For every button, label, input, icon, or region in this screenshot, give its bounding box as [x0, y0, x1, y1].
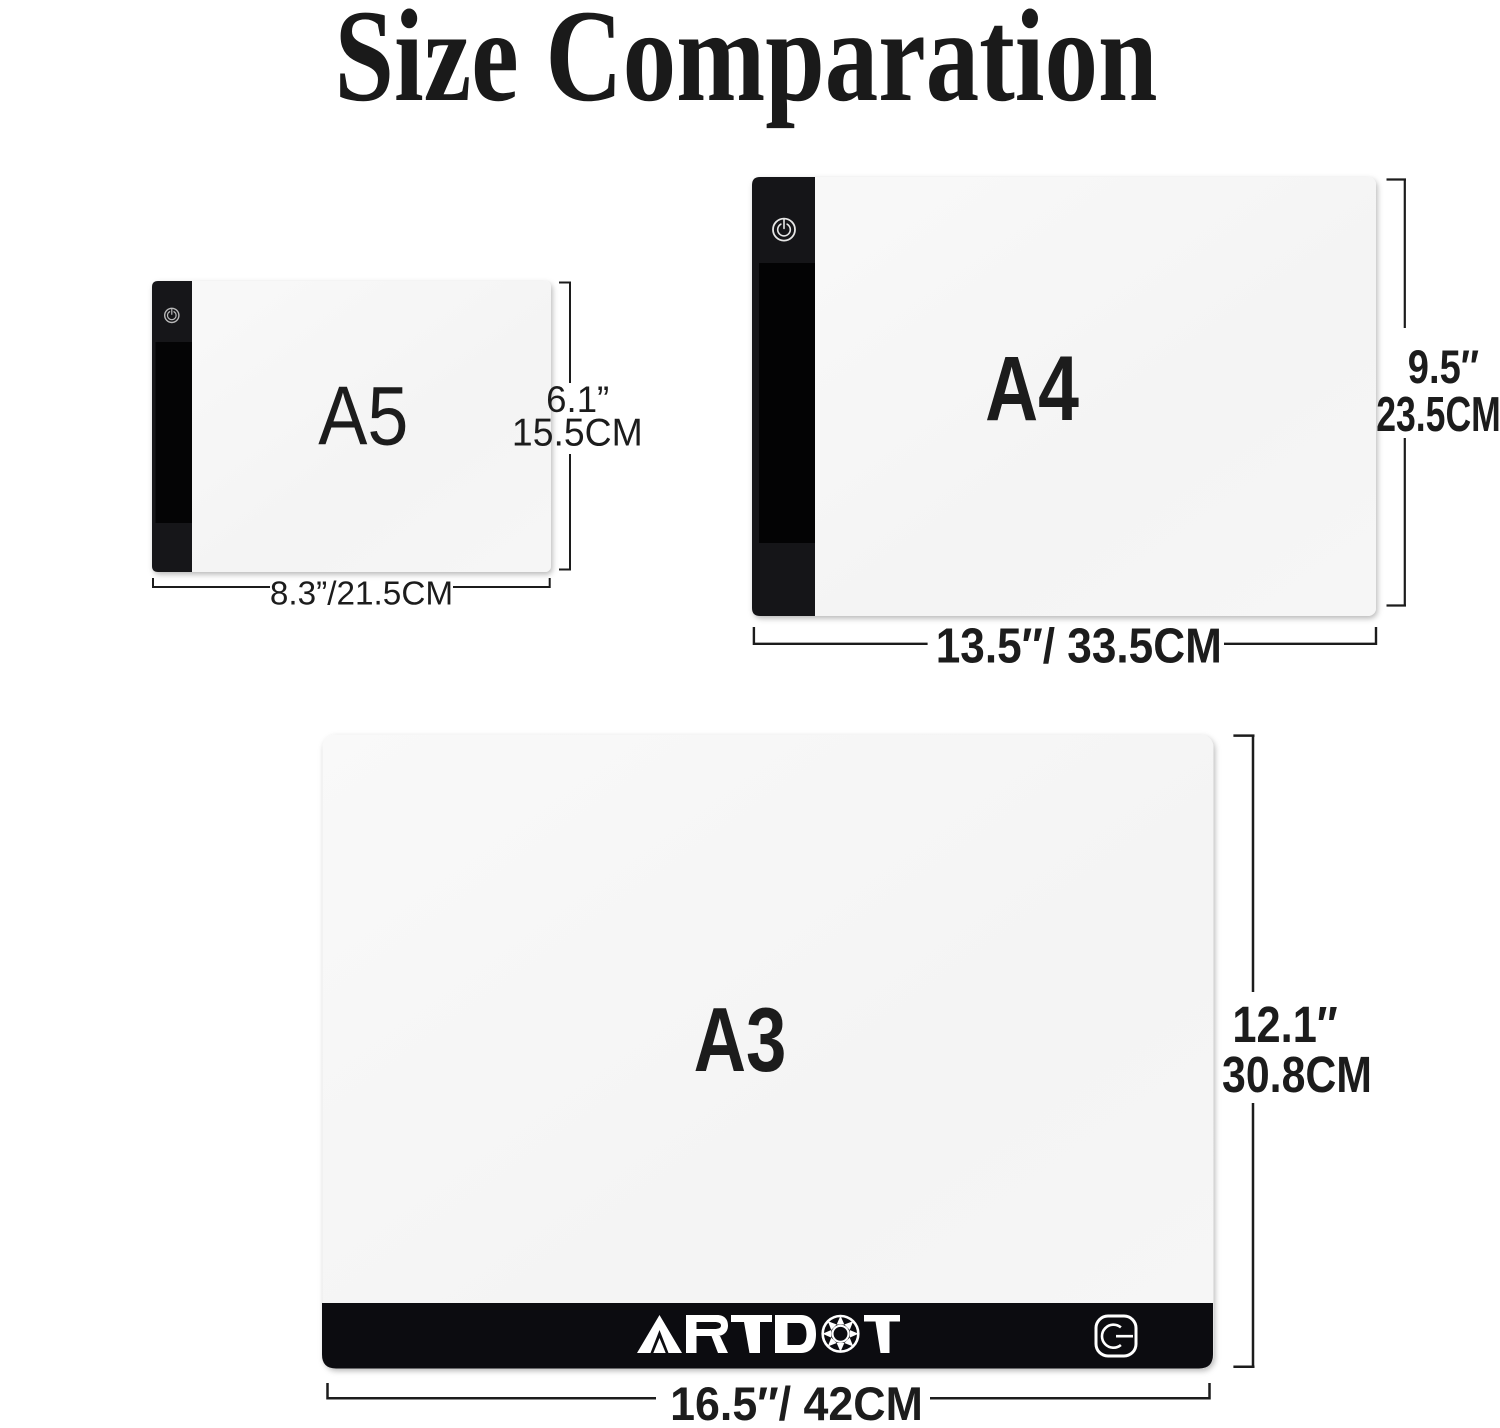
svg-text:12.1″: 12.1″ [1232, 997, 1337, 1054]
svg-text:30.8CM: 30.8CM [1222, 1046, 1372, 1104]
svg-text:23.5CM: 23.5CM [1376, 388, 1500, 443]
svg-text:A4: A4 [985, 337, 1079, 440]
svg-text:A5: A5 [318, 369, 408, 462]
svg-text:A3: A3 [694, 990, 787, 1090]
svg-text:8.3”/21.5CM: 8.3”/21.5CM [270, 575, 453, 612]
svg-text:Size Comparation: Size Comparation [335, 0, 1158, 129]
svg-text:15.5CM: 15.5CM [512, 411, 643, 455]
svg-text:13.5″/ 33.5CM: 13.5″/ 33.5CM [936, 618, 1222, 673]
svg-text:9.5″: 9.5″ [1408, 341, 1479, 394]
svg-text:16.5″/ 42CM: 16.5″/ 42CM [670, 1377, 923, 1428]
